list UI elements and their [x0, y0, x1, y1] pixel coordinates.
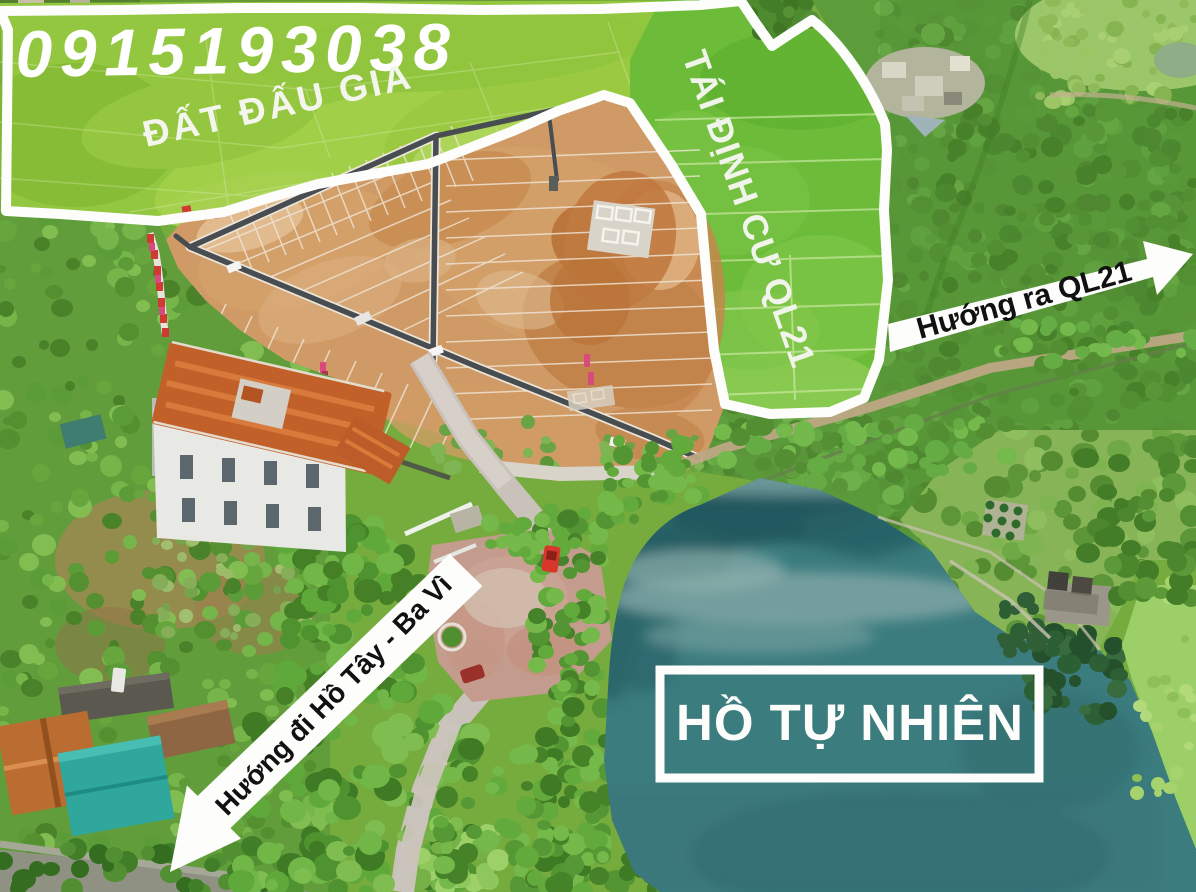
- svg-text:HỒ TỰ NHIÊN: HỒ TỰ NHIÊN: [676, 693, 1024, 751]
